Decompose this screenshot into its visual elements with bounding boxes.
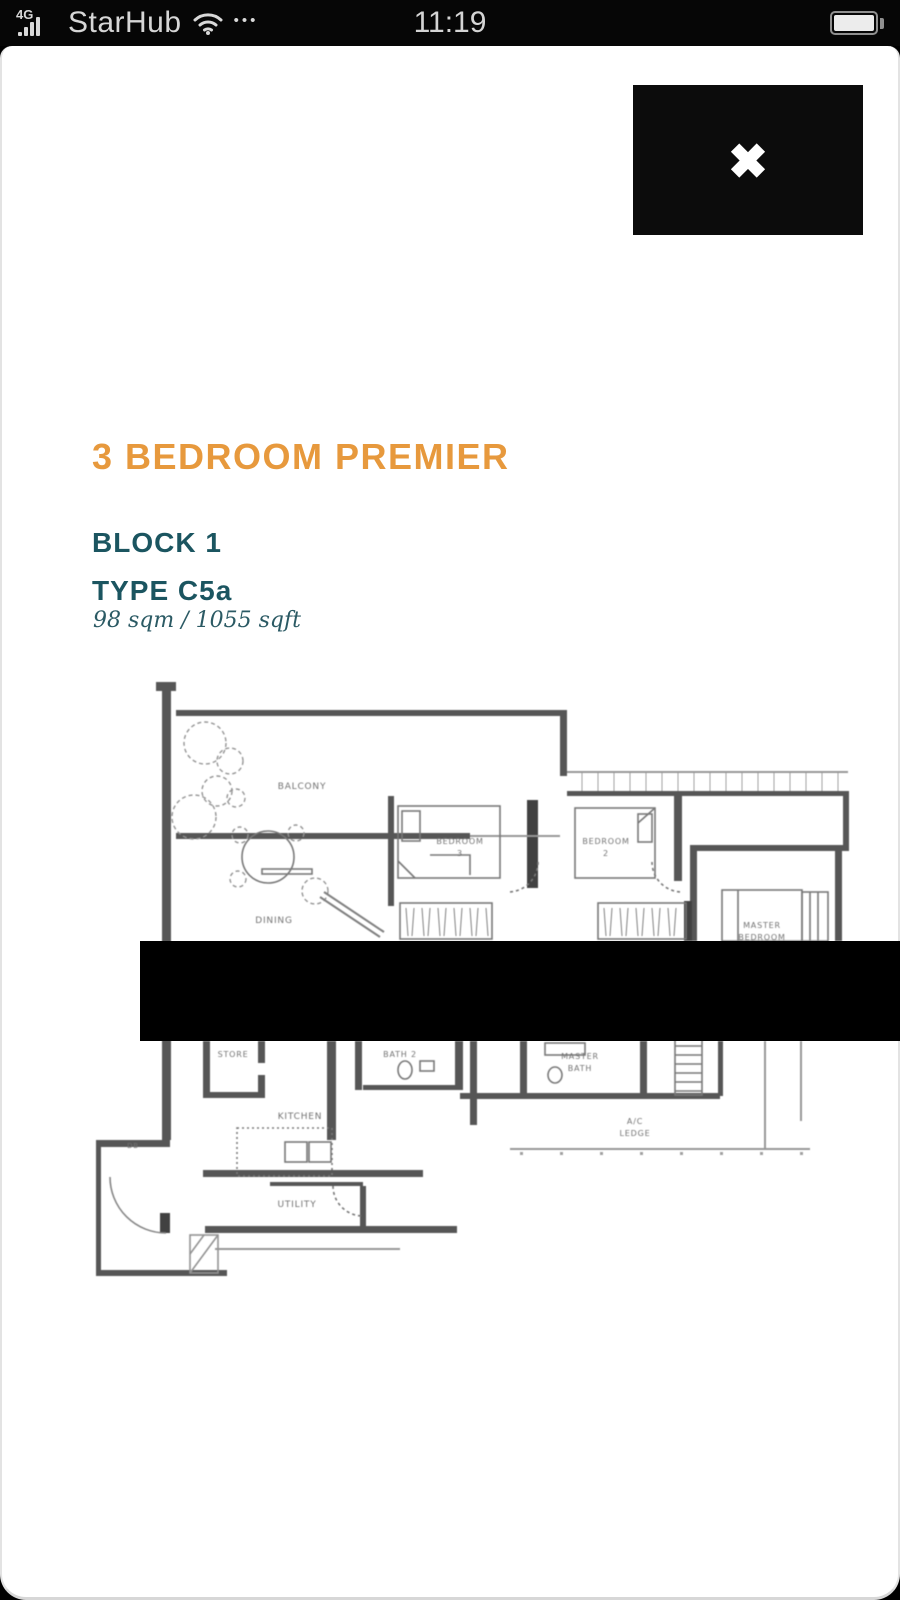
page-title: 3 BEDROOM PREMIER (92, 436, 510, 478)
redaction-bar (140, 941, 900, 1041)
close-button[interactable]: ✖ (633, 85, 863, 235)
wifi-icon (192, 10, 224, 36)
dining-label: DINING (255, 916, 292, 926)
clock-label: 11:19 (414, 6, 487, 40)
carrier-label: StarHub (68, 6, 182, 40)
bedroom3-label: BEDROOM (436, 837, 483, 846)
unit-type-label: TYPE C5a (92, 575, 232, 607)
phone-screen: 4G StarHub ••• 11:19 ✖ 3 BEDROOM PREMIE (0, 0, 900, 1600)
close-icon: ✖ (728, 139, 768, 187)
master-bath-label-2: BATH (568, 1064, 592, 1073)
ac-ledge-label-1: A/C (627, 1117, 643, 1126)
balcony-label: BALCONY (278, 782, 327, 792)
db-label: DB (127, 1142, 139, 1150)
store-label: STORE (218, 1050, 249, 1059)
utility-label: UTILITY (277, 1200, 316, 1210)
ac-ledge-label-2: LEDGE (620, 1129, 651, 1138)
bedroom3-number: 3 (457, 849, 463, 858)
master-bedroom-label-1: MASTER (743, 921, 781, 930)
bedroom2-label: BEDROOM (582, 837, 629, 846)
bath2-label: BATH 2 (383, 1050, 417, 1059)
kitchen-label: KITCHEN (278, 1112, 323, 1122)
more-icon: ••• (234, 12, 259, 35)
bedroom2-number: 2 (603, 849, 609, 858)
battery-icon (830, 11, 884, 35)
cellular-signal-icon: 4G (16, 7, 58, 39)
block-label: BLOCK 1 (92, 527, 222, 559)
master-bath-label-1: MASTER (561, 1052, 599, 1061)
status-bar: 4G StarHub ••• 11:19 (0, 0, 900, 46)
area-label: 98 sqm / 1055 sqft (93, 608, 301, 633)
